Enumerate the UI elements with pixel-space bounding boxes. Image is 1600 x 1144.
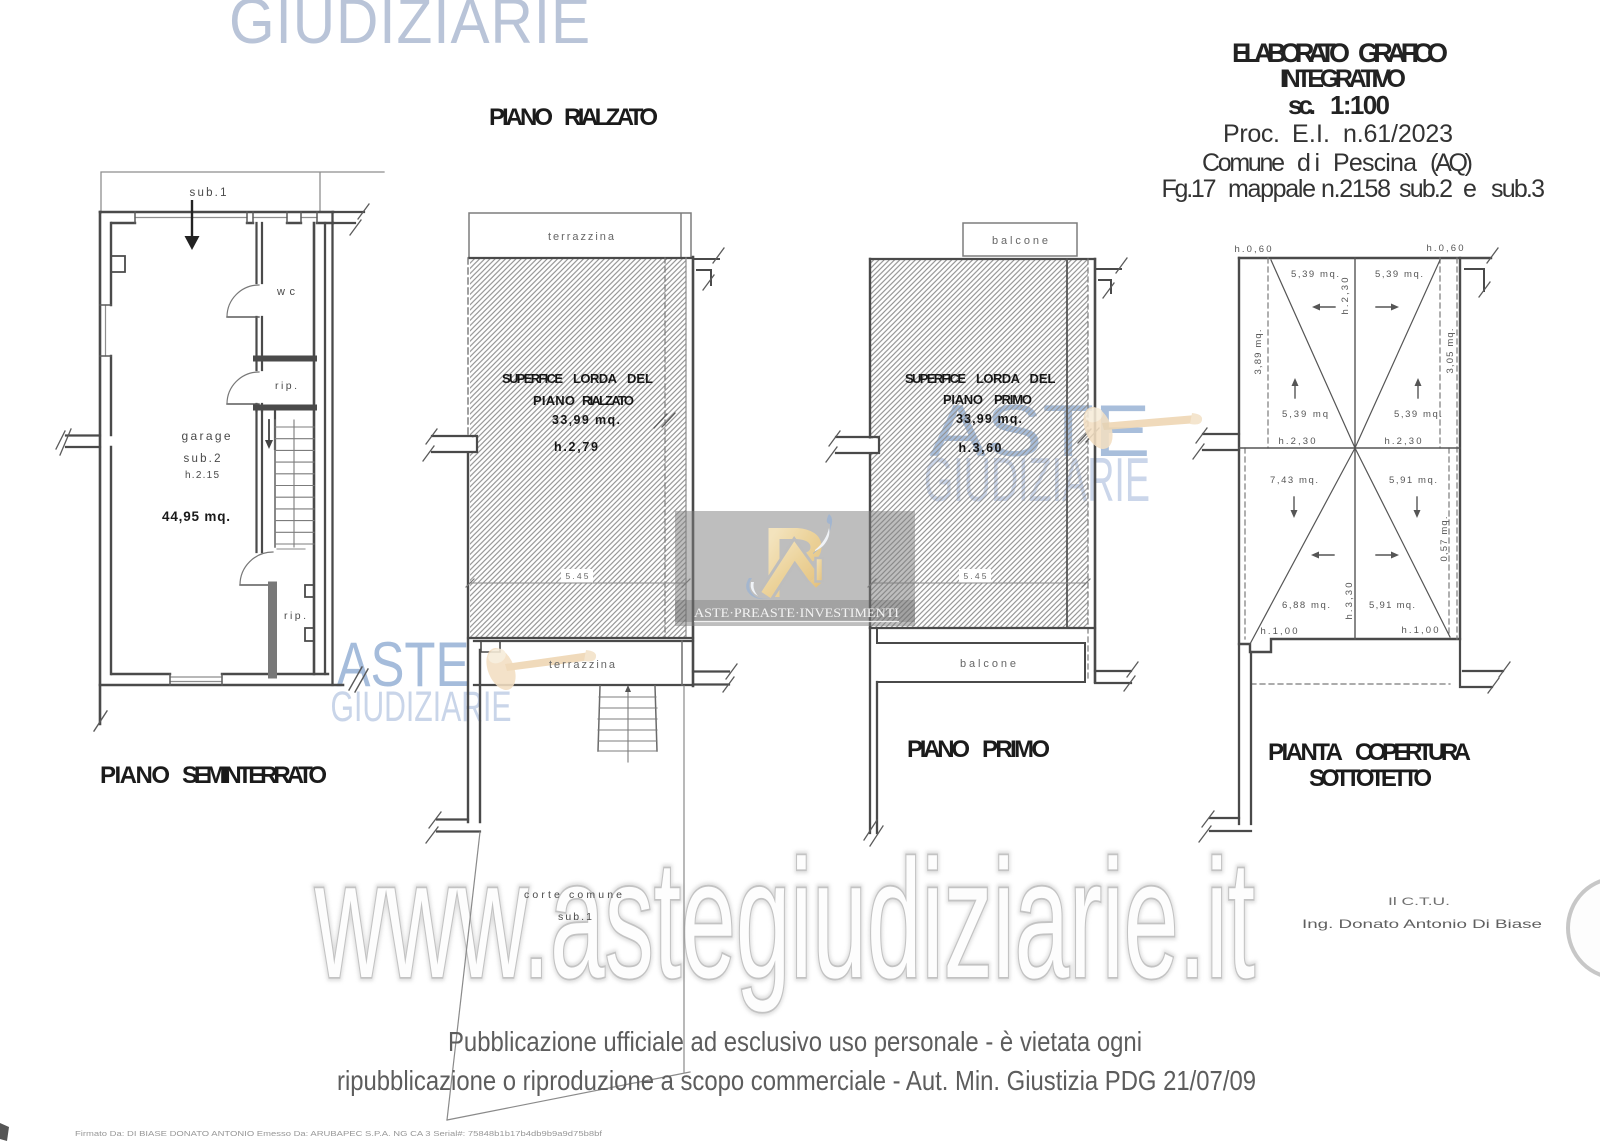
svg-text:h.1,00: h.1,00	[1402, 625, 1439, 636]
svg-text:sub.2: sub.2	[1399, 175, 1453, 203]
svg-text:PRIMO: PRIMO	[994, 392, 1032, 407]
svg-text:3,89 mq.: 3,89 mq.	[1253, 330, 1264, 375]
svg-text:Pescina: Pescina	[1333, 149, 1417, 177]
svg-text:h.2,30: h.2,30	[1279, 436, 1316, 447]
svg-text:Fg.17: Fg.17	[1162, 175, 1217, 203]
svg-text:SUPERFICE: SUPERFICE	[502, 371, 563, 386]
svg-text:balcone: balcone	[992, 235, 1048, 247]
svg-text:Ing. Donato Antonio Di Bia: Ing. Donato Antonio Di Biase	[1302, 917, 1543, 931]
svg-text:h.1,00: h.1,00	[1261, 626, 1298, 637]
svg-text:e: e	[1463, 175, 1477, 203]
svg-text:33,99 mq.: 33,99 mq.	[956, 412, 1022, 426]
svg-text:garage: garage	[182, 429, 231, 443]
svg-text:rip.: rip.	[284, 610, 306, 622]
svg-text:sub.1: sub.1	[190, 187, 227, 199]
svg-text:di: di	[1297, 149, 1320, 177]
svg-text:(AQ): (AQ)	[1430, 149, 1473, 177]
svg-text:h.3,30: h.3,30	[1344, 583, 1355, 620]
svg-text:PIANO: PIANO	[489, 104, 553, 131]
svg-text:SEMINTERRATO: SEMINTERRATO	[182, 762, 327, 789]
svg-text:terrazzina: terrazzina	[549, 659, 616, 671]
svg-text:INTEGRATIVO: INTEGRATIVO	[1280, 65, 1406, 93]
svg-text:PRIMO: PRIMO	[982, 736, 1050, 763]
svg-text:RIALZATO: RIALZATO	[564, 104, 658, 131]
svg-text:DEL: DEL	[627, 371, 653, 386]
svg-text:Comune: Comune	[1202, 149, 1285, 177]
svg-text:balcone: balcone	[960, 658, 1016, 670]
svg-text:5,39 mq.: 5,39 mq.	[1375, 269, 1423, 280]
svg-text:5,39 mq.: 5,39 mq.	[1291, 269, 1339, 280]
svg-text:wc: wc	[276, 286, 296, 298]
svg-text:n.2158: n.2158	[1321, 175, 1391, 203]
svg-text:1:100: 1:100	[1330, 90, 1390, 120]
svg-text:www.astegiudiziarie.it: www.astegiudiziarie.it	[314, 825, 1255, 1013]
svg-text:GIUDIZIARIE: GIUDIZIARIE	[331, 683, 512, 731]
svg-text:h.2,30: h.2,30	[1385, 436, 1422, 447]
svg-text:0,57 mq.: 0,57 mq.	[1439, 517, 1450, 562]
svg-text:5,39 mq.: 5,39 mq.	[1394, 409, 1442, 420]
svg-text:ASTE·PREASTE·INVESTIMENTI: ASTE·PREASTE·INVESTIMENTI	[694, 606, 899, 620]
svg-text:7,43 mq.: 7,43 mq.	[1270, 475, 1318, 486]
svg-text:SUPERFICE: SUPERFICE	[905, 371, 966, 386]
svg-text:33,99 mq.: 33,99 mq.	[552, 413, 620, 427]
svg-text:h.0,60: h.0,60	[1427, 243, 1464, 254]
svg-text:PIANO: PIANO	[943, 392, 983, 407]
svg-text:terrazzina: terrazzina	[548, 231, 615, 243]
svg-text:COPERTURA: COPERTURA	[1355, 739, 1471, 766]
svg-text:sub.3: sub.3	[1491, 175, 1545, 203]
svg-text:ripubblicazione o riproduzione: ripubblicazione o riproduzione a scopo c…	[337, 1065, 1256, 1096]
svg-text:Firmato Da: DI BIASE DONATO AN: Firmato Da: DI BIASE DONATO ANTONIO Emes…	[75, 1129, 603, 1138]
svg-text:Proc.: Proc.	[1223, 120, 1280, 148]
svg-text:sub.2: sub.2	[184, 453, 221, 465]
svg-text:PIANO: PIANO	[533, 393, 575, 408]
svg-text:5.45: 5.45	[964, 571, 987, 581]
svg-text:5,91 mq.: 5,91 mq.	[1389, 475, 1437, 486]
svg-text:PIANO: PIANO	[907, 736, 970, 763]
svg-text:mappale: mappale	[1228, 175, 1316, 203]
svg-text:n.61/2023: n.61/2023	[1343, 120, 1453, 148]
svg-text:GRAFICO: GRAFICO	[1358, 38, 1448, 68]
svg-text:Pubblicazione ufficiale ad esc: Pubblicazione ufficiale ad esclusivo uso…	[448, 1026, 1142, 1057]
svg-text:5.45: 5.45	[566, 571, 589, 581]
svg-text:h.0,60: h.0,60	[1235, 244, 1272, 255]
svg-text:GIUDIZIARIE: GIUDIZIARIE	[229, 0, 591, 57]
svg-text:5,39 mq: 5,39 mq	[1282, 409, 1328, 420]
svg-text:sub.1: sub.1	[558, 911, 592, 923]
svg-text:Il C.T.U.: Il C.T.U.	[1388, 896, 1450, 908]
svg-text:6,88 mq.: 6,88 mq.	[1282, 600, 1330, 611]
svg-text:RIALZATO: RIALZATO	[582, 393, 634, 408]
svg-text:h.2,30: h.2,30	[1340, 278, 1351, 315]
svg-text:DEL: DEL	[1030, 371, 1056, 386]
svg-text:SOTTOTETTO: SOTTOTETTO	[1309, 765, 1432, 792]
svg-text:PIANTA: PIANTA	[1268, 739, 1343, 766]
svg-text:sc.: sc.	[1288, 90, 1316, 120]
svg-text:E.I.: E.I.	[1292, 120, 1330, 148]
svg-text:3,05 mq.: 3,05 mq.	[1445, 329, 1456, 374]
svg-text:LORDA: LORDA	[976, 371, 1021, 386]
svg-text:44,95 mq.: 44,95 mq.	[162, 509, 230, 524]
svg-text:h.2.15: h.2.15	[185, 470, 219, 481]
svg-text:LORDA: LORDA	[573, 371, 618, 386]
svg-text:ELABORATO: ELABORATO	[1232, 38, 1350, 68]
svg-text:5,91 mq.: 5,91 mq.	[1369, 600, 1415, 611]
svg-text:rip.: rip.	[275, 380, 297, 392]
svg-text:PIANO: PIANO	[100, 762, 170, 789]
